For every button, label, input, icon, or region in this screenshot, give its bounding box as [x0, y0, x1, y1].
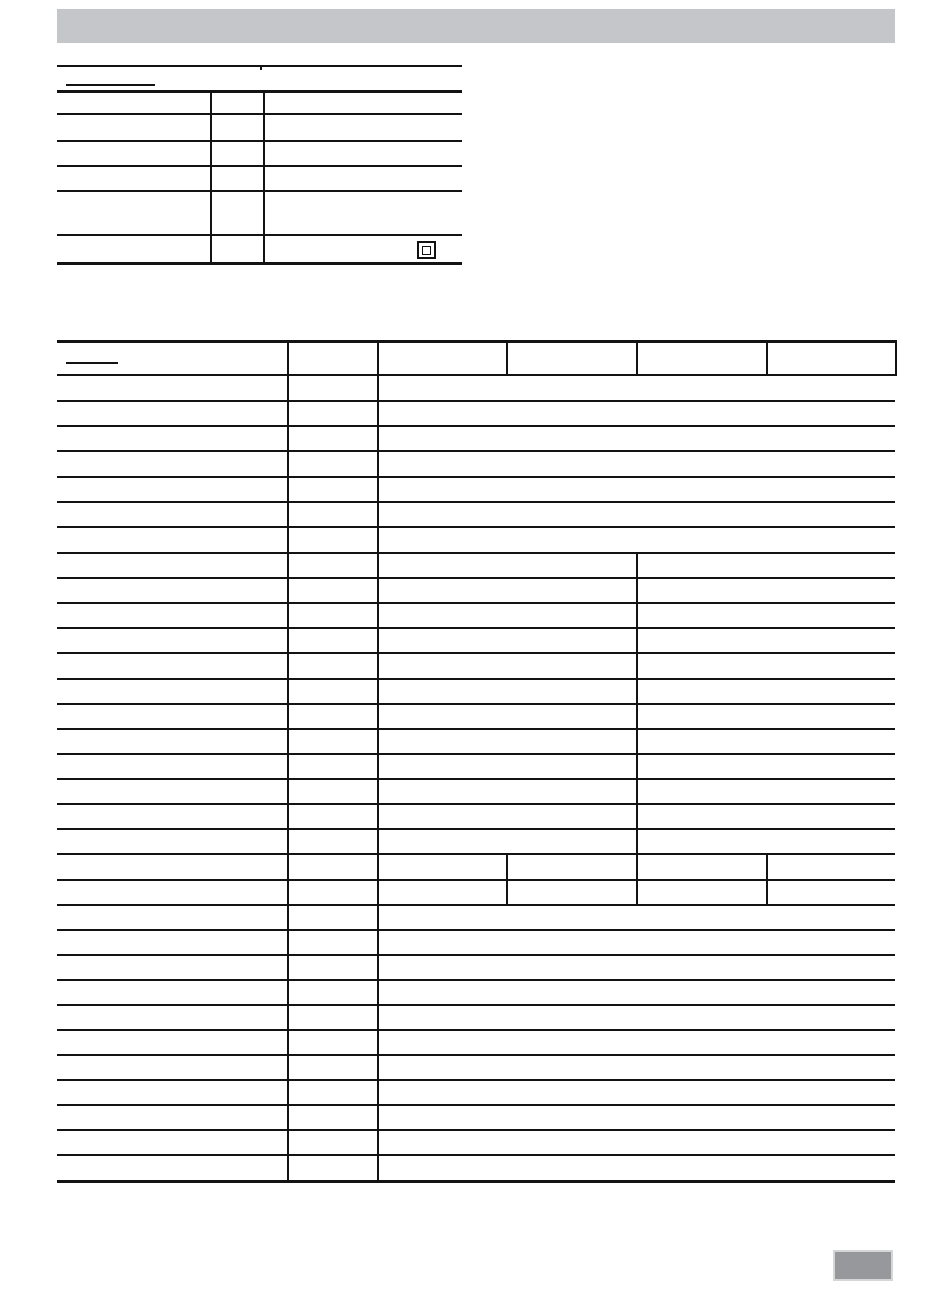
page-number-box: [833, 1250, 893, 1281]
spec-detail-row-line: [57, 552, 895, 554]
spec-detail-row-line: [57, 652, 895, 654]
spec-detail-row-line: [57, 1079, 895, 1081]
spec-detail-column-line: [287, 340, 289, 1182]
spec-detail-row-line: [57, 450, 895, 452]
spec-detail-row-line: [57, 501, 895, 503]
spec-detail-column-line: [506, 853, 508, 906]
spec-detail-row-line: [57, 1054, 895, 1056]
spec-detail-column-line: [895, 340, 897, 376]
top-rule-tick: [260, 65, 262, 70]
spec-detail-row-line: [57, 577, 895, 579]
top-table-heading-underline: [66, 84, 155, 86]
spec-detail-row-line: [57, 853, 895, 855]
spec-detail-row-line: [57, 703, 895, 705]
spec-summary-column-line: [210, 90, 212, 264]
top-rule: [261, 65, 462, 67]
spec-detail-row-line: [57, 678, 895, 680]
spec-detail-row-line: [57, 526, 895, 528]
spec-detail-row-line: [57, 425, 895, 427]
spec-detail-row-line: [57, 1129, 895, 1131]
spec-detail-column-line: [766, 340, 768, 376]
spec-detail-row-line: [57, 979, 895, 981]
spec-detail-row-line: [57, 627, 895, 629]
spec-detail-row-line: [57, 1029, 895, 1031]
spec-detail-row-line: [57, 476, 895, 478]
spec-detail-row-line: [57, 340, 895, 343]
spec-detail-row-line: [57, 1154, 895, 1156]
spec-detail-row-line: [57, 400, 895, 402]
spec-summary-column-line: [263, 90, 265, 264]
spec-detail-row-line: [57, 374, 895, 376]
spec-detail-column-line: [506, 340, 508, 376]
spec-summary-row-line: [57, 140, 462, 142]
spec-detail-row-line: [57, 803, 895, 805]
spec-detail-row-line: [57, 602, 895, 604]
spec-detail-row-line: [57, 1004, 895, 1006]
spec-detail-row-line: [57, 929, 895, 931]
spec-detail-row-line: [57, 1104, 895, 1106]
spec-detail-column-line: [636, 340, 638, 376]
spec-detail-row-line: [57, 778, 895, 780]
class-ii-inner-square: [422, 246, 431, 255]
spec-summary-row-line: [57, 262, 462, 265]
spec-summary-row-line: [57, 190, 462, 192]
spec-detail-row-line: [57, 1180, 895, 1183]
spec-detail-row-line: [57, 753, 895, 755]
spec-summary-row-line: [57, 90, 462, 93]
spec-detail-row-line: [57, 728, 895, 730]
main-table-heading-underline: [66, 362, 118, 364]
class-ii-double-square-icon: [417, 241, 436, 259]
top-rule: [57, 65, 260, 67]
document-page: [0, 0, 950, 1290]
page-header-bar: [57, 9, 895, 43]
spec-detail-column-line: [636, 552, 638, 855]
spec-summary-row-line: [57, 234, 462, 236]
spec-detail-row-line: [57, 879, 895, 881]
spec-detail-row-line: [57, 828, 895, 830]
spec-detail-column-line: [636, 853, 638, 906]
spec-summary-row-line: [57, 165, 462, 167]
spec-summary-row-line: [57, 113, 462, 115]
spec-detail-row-line: [57, 954, 895, 956]
spec-detail-column-line: [377, 340, 379, 1182]
spec-detail-column-line: [766, 853, 768, 906]
spec-detail-row-line: [57, 904, 895, 906]
